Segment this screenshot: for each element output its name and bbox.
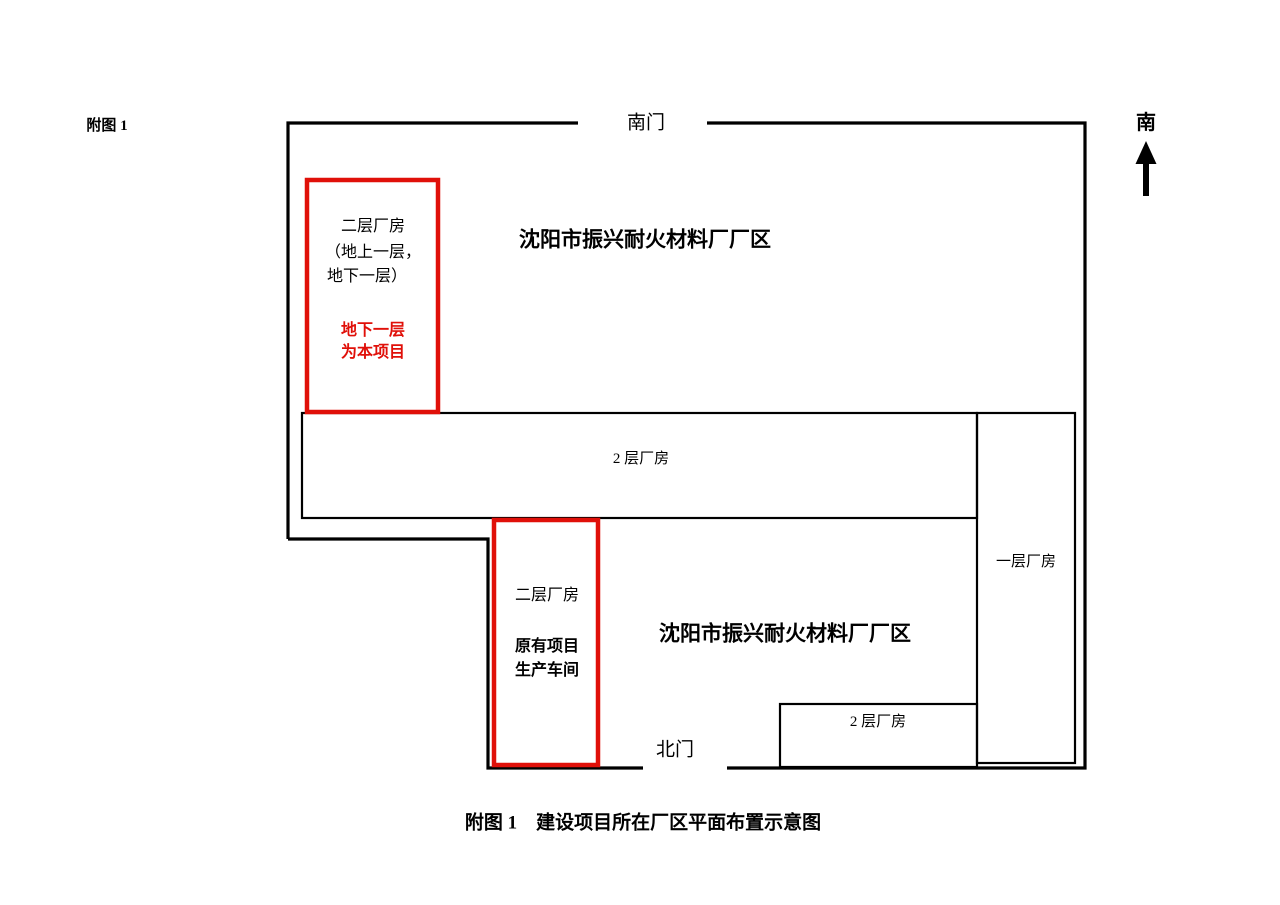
workshop-1f-right-label: 一层厂房 (996, 554, 1056, 571)
project-building-outline (307, 180, 438, 412)
workshop-2f-mid-label: 2 层厂房 (613, 451, 669, 468)
figure-caption: 附图 1 建设项目所在厂区平面布置示意图 (465, 814, 821, 835)
project-building-line3: 地下一层） (327, 268, 407, 286)
compass-south-label: 南 (1136, 112, 1156, 134)
project-building-line1: 二层厂房 (341, 218, 405, 236)
factory-area-label-upper: 沈阳市振兴耐火材料厂厂区 (519, 228, 771, 251)
existing-building-line2: 原有项目 (515, 638, 579, 656)
workshop-2f-bottom-label: 2 层厂房 (850, 714, 906, 731)
north-gate-label: 北门 (656, 741, 694, 762)
factory-area-label-lower: 沈阳市振兴耐火材料厂厂区 (659, 622, 911, 645)
project-building-highlight-line1: 地下一层 (341, 322, 405, 340)
existing-building-line1: 二层厂房 (515, 587, 579, 605)
north-arrow-icon (1136, 141, 1157, 196)
workshop-1f-right-rect (977, 413, 1075, 763)
site-plan-page: 附图 1 南门 南 沈阳市振兴耐火材料厂厂区 二层厂房 （地上一层， 地下一层）… (0, 0, 1280, 905)
figure-corner-label: 附图 1 (86, 118, 127, 135)
south-gate-label: 南门 (627, 114, 665, 135)
existing-building-line3: 生产车间 (515, 662, 579, 680)
project-building-highlight-line2: 为本项目 (341, 344, 405, 362)
project-building-line2: （地上一层， (325, 244, 421, 262)
